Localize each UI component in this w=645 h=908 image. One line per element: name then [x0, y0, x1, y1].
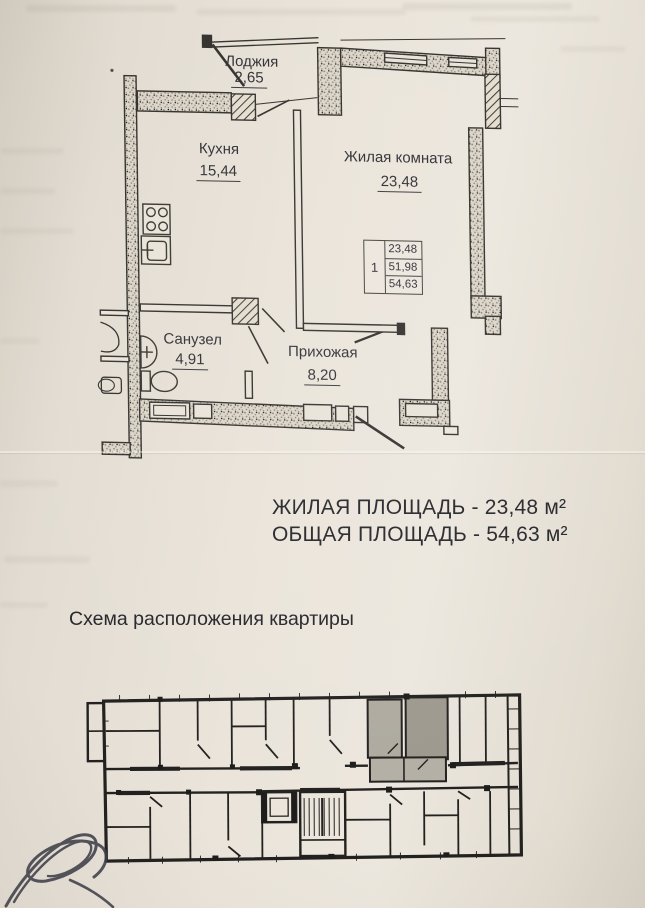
- scanned-floorplan-page: Лоджия 2,65 Кухня 15,44 Жилая комната 23…: [0, 0, 645, 908]
- signature: [0, 0, 645, 908]
- paper-crease: [0, 451, 645, 453]
